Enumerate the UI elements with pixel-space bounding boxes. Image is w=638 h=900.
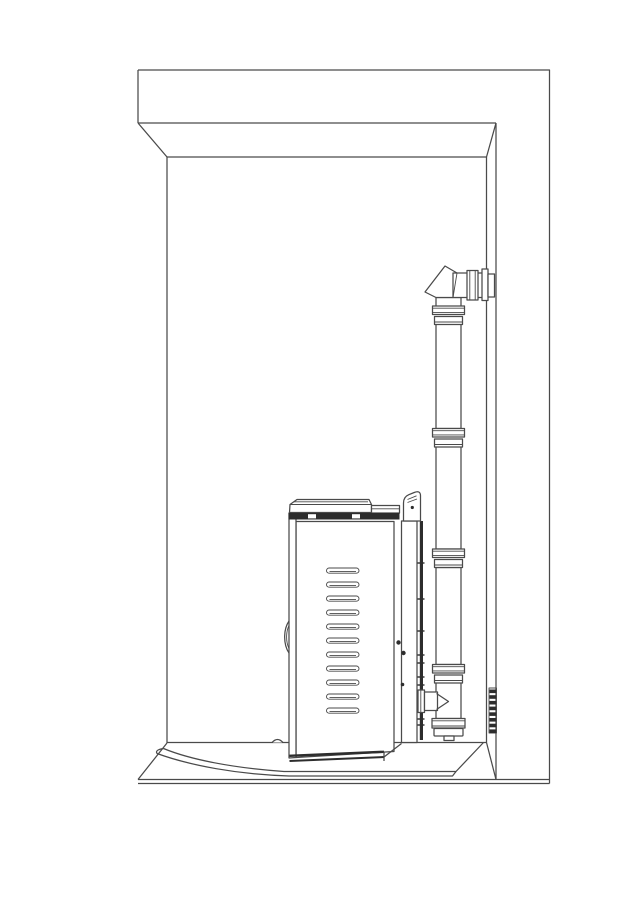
stove-top-grille-gap (308, 514, 316, 518)
tee-bottom-coupling (432, 719, 465, 729)
wall-thimble-ring (482, 269, 488, 301)
installation-diagram-page (0, 0, 638, 900)
vent-pipe-section (436, 324, 461, 429)
pipe-elbow (425, 266, 457, 298)
tee-cleanout-cap (434, 729, 463, 737)
vent-pipe-stub (436, 298, 461, 307)
stove-top-grille-band (289, 513, 400, 520)
wall-vent-grille-dashes (490, 690, 497, 734)
horizontal-pipe-coupling (467, 271, 478, 301)
alcove-ceiling-right-diagonal (487, 123, 497, 157)
rear-heat-shield-panel (402, 521, 418, 743)
floor-right-diagonal (487, 743, 497, 780)
vent-pipe-section (436, 568, 461, 665)
line-drawing-canvas (0, 0, 638, 900)
flue-connector-flange (418, 690, 425, 713)
alcove-ceiling-left-diagonal (138, 123, 167, 157)
stove-front-panel (289, 513, 296, 758)
vent-pipe-assembly (418, 266, 495, 741)
flue-connector-stub (425, 692, 438, 711)
stove-front-foot-bump (272, 740, 283, 743)
flue-bracket-pin (411, 506, 414, 509)
stove-body-panel (296, 522, 394, 758)
wall-pass-through-stub (488, 274, 495, 297)
stove-top-grille-gap (352, 514, 360, 518)
tee-cleanout-cap-nub (444, 736, 454, 741)
flue-tee-body (436, 683, 461, 719)
stove (272, 492, 425, 761)
vent-pipe-section (436, 447, 461, 550)
stove-top-rear-step (372, 506, 400, 514)
